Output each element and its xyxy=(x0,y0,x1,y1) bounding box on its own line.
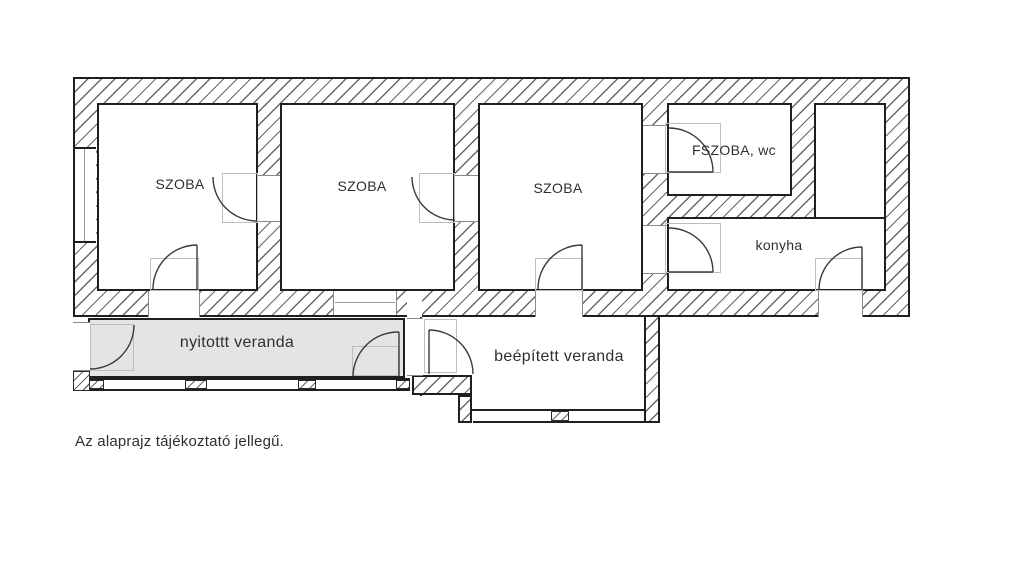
door-opening-between-verandas xyxy=(407,318,423,376)
veranda-post xyxy=(185,380,207,389)
window-szoba2-bottom xyxy=(333,291,397,315)
veranda-entrance-door-opening xyxy=(73,322,90,371)
door-frame-guide xyxy=(535,258,583,291)
built-in-veranda-parapet xyxy=(473,409,658,423)
veranda-junction-wall-opening xyxy=(407,291,422,317)
open-veranda-parapet xyxy=(88,378,410,391)
disclaimer-note: Az alaprajz tájékoztató jellegű. xyxy=(75,433,284,450)
door-frame-guide xyxy=(150,258,199,291)
built-in-veranda-step-wall-v xyxy=(458,395,472,423)
door-opening-szoba3-veranda xyxy=(535,291,583,317)
door-opening-szoba1-szoba2 xyxy=(258,175,280,222)
veranda-post xyxy=(396,380,410,389)
label-open-veranda: nyitottt veranda xyxy=(180,334,294,352)
built-in-veranda-right-wall xyxy=(644,315,660,423)
step-corner-patch xyxy=(414,396,458,413)
door-frame-guide xyxy=(665,223,721,273)
window-glass-line xyxy=(84,149,85,241)
door-opening-szoba3-fszoba xyxy=(643,125,667,174)
label-built-in-veranda: beépített veranda xyxy=(494,348,624,366)
veranda-post xyxy=(298,380,316,389)
door-frame-guide xyxy=(424,319,457,373)
door-opening-szoba2-szoba3 xyxy=(455,175,478,222)
door-opening-konyha-exterior xyxy=(818,291,863,317)
door-frame-guide xyxy=(419,173,455,223)
veranda-corner-post xyxy=(73,371,90,391)
veranda-post xyxy=(88,380,104,389)
door-opening-szoba1-veranda xyxy=(148,291,200,317)
veranda-post xyxy=(551,411,569,421)
label-szoba-2: SZOBA xyxy=(338,178,387,194)
built-in-veranda-step-wall-h xyxy=(412,375,472,395)
door-opening-szoba3-konyha xyxy=(643,225,667,274)
door-frame-guide xyxy=(90,324,134,371)
floor-plan: SZOBA SZOBA SZOBA FSZOBA, wc konyha nyit… xyxy=(0,0,1024,573)
label-konyha: konyha xyxy=(756,237,803,253)
left-wall-window xyxy=(75,147,96,243)
door-frame-guide xyxy=(815,258,863,291)
label-szoba-3: SZOBA xyxy=(534,180,583,196)
door-frame-guide xyxy=(352,346,399,376)
window-glass-line xyxy=(335,302,395,303)
label-szoba-1: SZOBA xyxy=(156,176,205,192)
door-frame-guide xyxy=(222,173,258,223)
label-fszoba-wc: FSZOBA, wc xyxy=(692,142,776,158)
